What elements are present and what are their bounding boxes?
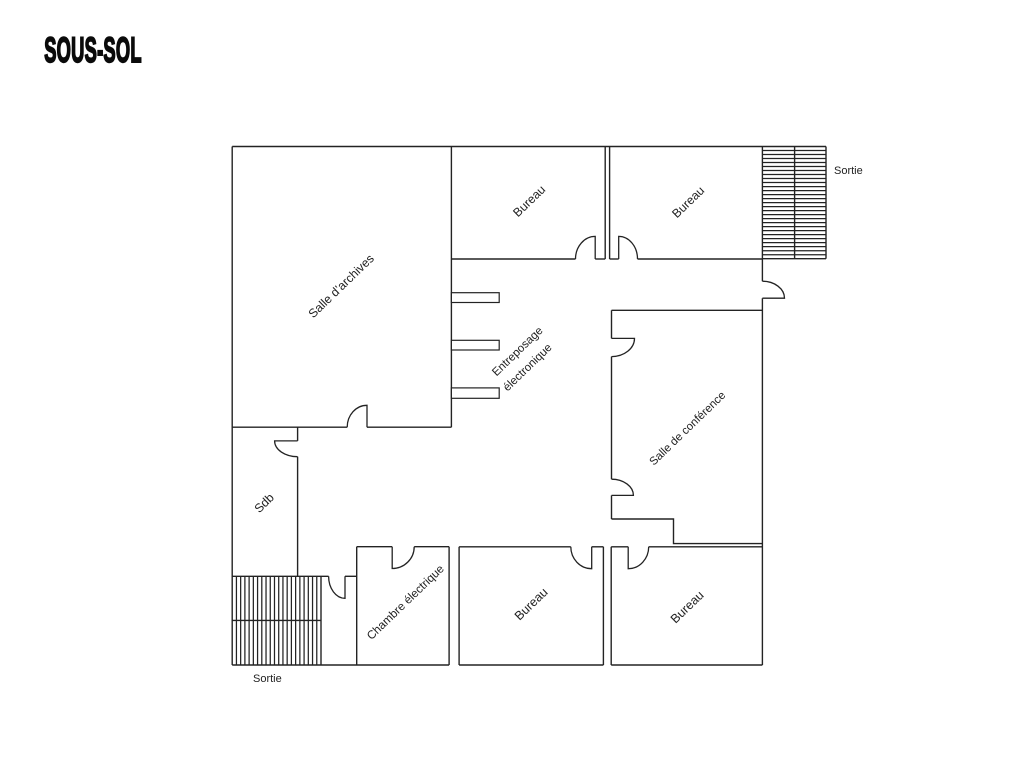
svg-text:Bureau: Bureau xyxy=(668,588,707,626)
svg-text:Sortie: Sortie xyxy=(253,673,282,685)
svg-text:Salle de conférence: Salle de conférence xyxy=(648,390,729,469)
svg-text:SOUS-SOL: SOUS-SOL xyxy=(44,30,142,69)
svg-text:Bureau: Bureau xyxy=(510,182,548,219)
svg-text:Sortie: Sortie xyxy=(834,165,863,177)
svg-text:Bureau: Bureau xyxy=(512,585,551,623)
svg-text:Chambre électrique: Chambre électrique xyxy=(364,562,446,642)
svg-text:Sdb: Sdb xyxy=(252,490,277,515)
svg-text:Salle d’archives: Salle d’archives xyxy=(306,251,377,320)
svg-text:Bureau: Bureau xyxy=(669,183,707,220)
